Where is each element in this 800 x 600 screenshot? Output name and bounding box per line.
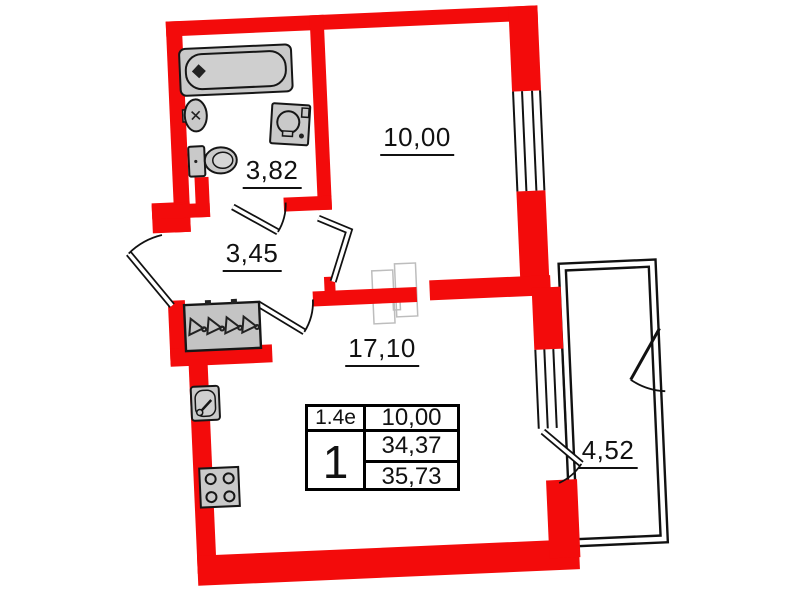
bathtub-icon <box>179 44 293 96</box>
room-label-room: 10,00 <box>380 122 454 156</box>
room-label-bathroom: 3,82 <box>243 155 302 189</box>
window-icon <box>513 90 544 191</box>
area-cell: 34,37 <box>363 432 457 463</box>
info-table: 1.4e 10,00 1 34,37 35,73 <box>305 404 460 491</box>
entrance-door-icon <box>128 235 172 308</box>
total-area-cell: 35,73 <box>363 463 457 491</box>
living-area-cell: 10,00 <box>363 407 457 432</box>
balcony-door-window-icon <box>535 349 565 429</box>
floor-plan: 3,82 10,00 3,45 17,10 4,52 1.4e 10,00 1 … <box>0 0 800 600</box>
stove-icon <box>199 467 240 508</box>
bathroom-door-icon <box>233 203 287 234</box>
room-label-balcony: 4,52 <box>579 435 638 469</box>
living-room-door-icon <box>258 299 314 333</box>
balcony-door-icon <box>543 430 582 484</box>
room-count-cell: 1 <box>308 432 363 491</box>
room-label-living: 17,10 <box>345 333 419 367</box>
toilet-icon <box>188 145 237 177</box>
room-label-hallway: 3,45 <box>223 238 282 272</box>
flat-type-cell: 1.4e <box>308 407 363 432</box>
kitchen-sink-icon <box>191 386 220 421</box>
washing-machine-icon <box>270 103 310 145</box>
floor-plan-drawing <box>0 0 800 600</box>
hall-partition <box>318 217 351 282</box>
wardrobe-icon <box>184 298 261 351</box>
